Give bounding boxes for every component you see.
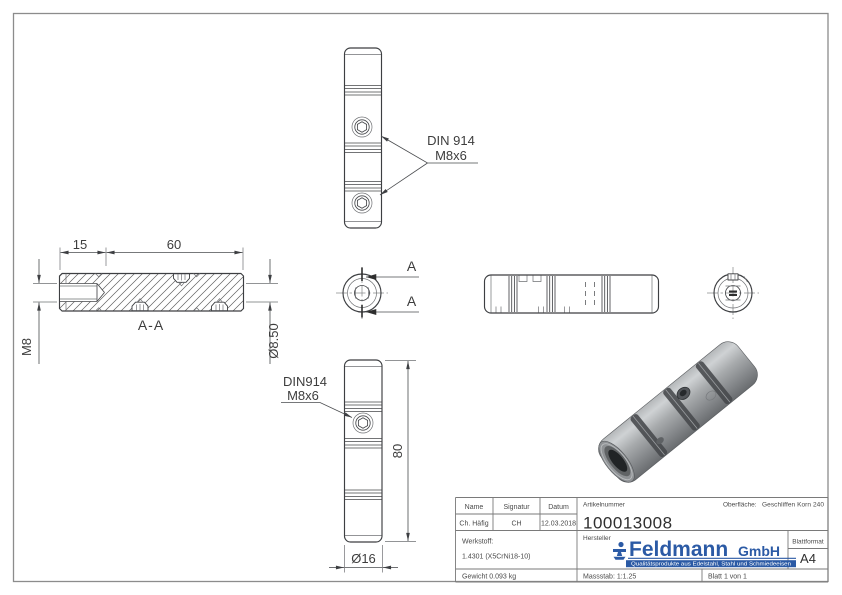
- date-value: 12.03.2018: [541, 521, 576, 528]
- manufacturer-label: Hersteller: [583, 535, 612, 542]
- surface-label: Oberfläche:: [723, 502, 757, 509]
- dimension-16: Ø16: [329, 545, 398, 573]
- name-value: Ch. Häfig: [459, 521, 488, 528]
- dimension-80: 80: [385, 361, 416, 542]
- set-screw-top-1: [352, 117, 372, 137]
- logo-name: Feldmann: [629, 538, 728, 561]
- dim-850-label: Ø8.50: [266, 323, 281, 358]
- dimension-bore-850: Ø8.50: [246, 259, 281, 364]
- callout-din914-top-line1: DIN 914: [427, 133, 475, 148]
- surface-value: Geschliffen Korn 240: [762, 502, 824, 509]
- date-label: Datum: [548, 504, 569, 511]
- material-value: 1.4301 (X5CrNi18-10): [462, 554, 530, 561]
- feldmann-logo: Feldmann GmbH Qualitätsprodukte aus Edel…: [613, 538, 796, 567]
- dim-60-label: 60: [167, 237, 181, 252]
- view-front-bottom: [345, 360, 383, 542]
- view-section-a-a: A-A: [60, 274, 244, 334]
- dimension-15: 15: [60, 237, 243, 270]
- section-label: A-A: [138, 317, 164, 333]
- signature-value: CH: [511, 521, 521, 528]
- view-front-top: [345, 48, 382, 228]
- callout-din914-bottom-line1: DIN914: [283, 374, 327, 389]
- title-block: Name Signatur Datum Ch. Häfig CH 12.03.2…: [456, 498, 829, 583]
- dim-15-label: 15: [73, 237, 87, 252]
- sheet-format-value: A4: [800, 551, 816, 566]
- logo-tagline: Qualitätsprodukte aus Edelstahl, Stahl u…: [631, 561, 791, 567]
- cad-drawing-canvas: DIN 914 M8x6 A-A 15 60: [0, 0, 842, 595]
- part-3d-render: [592, 336, 763, 488]
- section-arrow-label-bottom: A: [407, 293, 417, 309]
- sheet-number-value: Blatt 1 von 1: [708, 574, 747, 581]
- callout-din914-top-line2: M8x6: [435, 148, 467, 163]
- dim-m8-label: M8: [19, 338, 34, 356]
- dim-16-label: Ø16: [351, 551, 376, 566]
- signature-label: Signatur: [503, 504, 530, 511]
- section-arrow-label-top: A: [407, 258, 417, 274]
- view-plan-circle: A A: [336, 258, 419, 319]
- sheet-format-label: Blattformat: [792, 539, 824, 546]
- view-end-circle: [707, 267, 759, 319]
- scale-value: Massstab: 1:1.25: [583, 574, 636, 581]
- material-label: Werkstoff:: [462, 539, 493, 546]
- drawing-sheet: DIN 914 M8x6 A-A 15 60: [0, 0, 842, 595]
- feldmann-logo-emblem: [613, 542, 626, 560]
- set-screw-bottom-view: [353, 413, 373, 433]
- weight-value: Gewicht 0.093 kg: [462, 574, 516, 581]
- callout-din914-bottom: DIN914 M8x6: [281, 374, 352, 418]
- name-label: Name: [465, 504, 484, 511]
- logo-suffix: GmbH: [738, 543, 780, 559]
- dimension-m8: M8: [19, 259, 57, 364]
- view-side: [485, 275, 659, 313]
- article-number-label: Artikelnummer: [583, 502, 626, 509]
- article-number-value: 100013008: [583, 514, 673, 533]
- dim-80-label: 80: [390, 444, 405, 458]
- set-screw-top-2: [352, 193, 372, 213]
- dimension-60: 60: [107, 237, 243, 253]
- callout-din914-bottom-line2: M8x6: [287, 388, 319, 403]
- callout-din914-top: DIN 914 M8x6: [380, 133, 478, 195]
